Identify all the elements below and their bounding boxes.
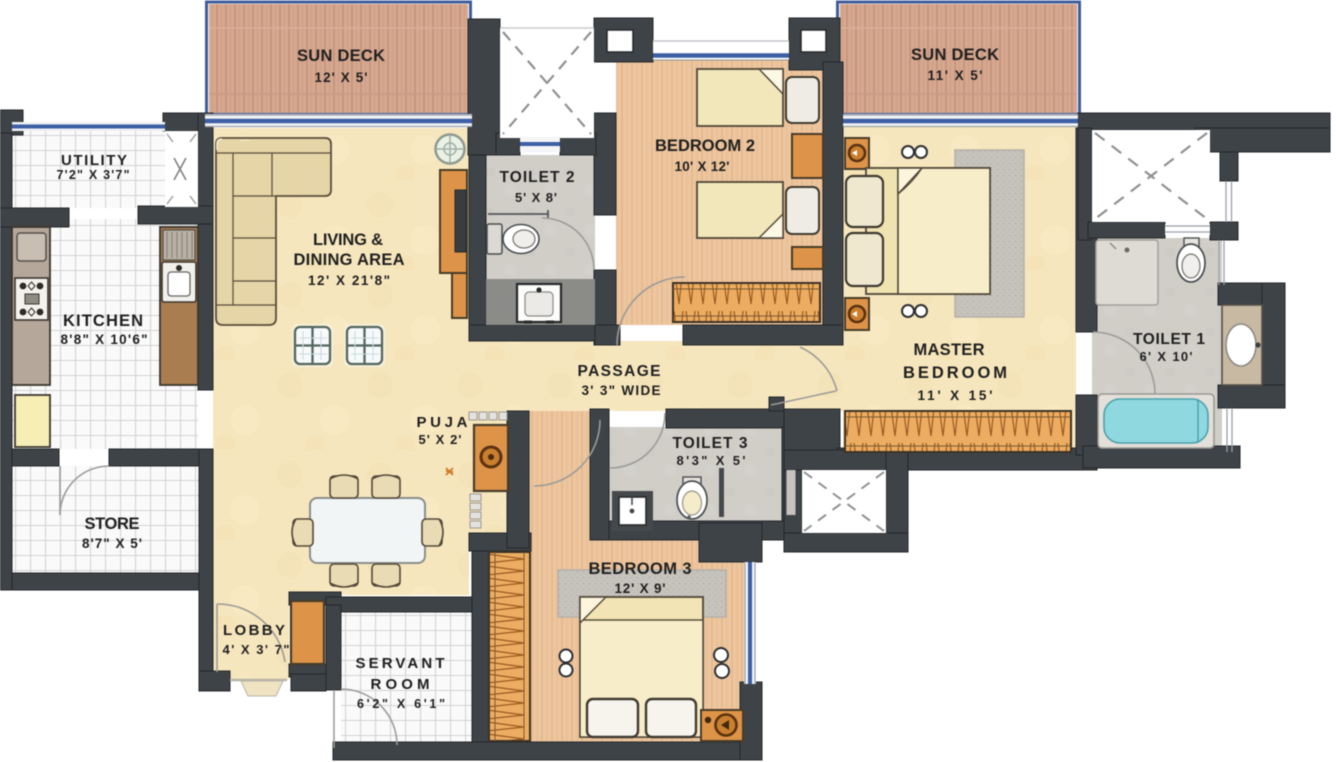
svg-text:8'7" X 5': 8'7" X 5' [82,536,142,551]
svg-text:11' X 5': 11' X 5' [928,68,983,83]
svg-text:PASSAGE: PASSAGE [578,363,661,380]
svg-text:8'8" X 10'6": 8'8" X 10'6" [61,332,148,347]
svg-text:12' X 21'8": 12' X 21'8" [308,273,390,288]
svg-text:STORE: STORE [85,515,140,533]
svg-text:5' X 2': 5' X 2' [419,432,462,447]
svg-text:UTILITY: UTILITY [61,152,127,169]
svg-text:3' 3" WIDE: 3' 3" WIDE [582,383,661,398]
svg-text:TOILET 2: TOILET 2 [500,169,575,186]
svg-text:8'3" X 5': 8'3" X 5' [677,453,746,468]
svg-text:BEDROOM 2: BEDROOM 2 [655,137,755,155]
svg-text:MASTER: MASTER [914,341,985,359]
svg-text:11' X 15': 11' X 15' [918,388,993,403]
svg-text:7'2" X 3'7": 7'2" X 3'7" [57,168,130,182]
svg-text:10' X 12': 10' X 12' [675,159,730,174]
svg-text:SUN DECK: SUN DECK [911,46,999,64]
svg-text:LIVING &: LIVING & [313,231,383,249]
svg-text:SUN DECK: SUN DECK [297,47,385,65]
svg-text:12' X 9': 12' X 9' [615,581,666,596]
svg-text:12' X 5': 12' X 5' [315,70,368,85]
svg-text:5' X 8': 5' X 8' [515,190,557,205]
svg-text:TOILET 3: TOILET 3 [673,435,748,452]
svg-text:DINING AREA: DINING AREA [294,251,405,269]
svg-text:TOILET 1: TOILET 1 [1133,331,1205,348]
svg-text:6' X 10': 6' X 10' [1140,349,1193,364]
svg-text:4' X 3' 7": 4' X 3' 7" [223,642,290,657]
svg-text:SERVANT: SERVANT [356,655,445,672]
svg-text:BEDROOM 3: BEDROOM 3 [589,560,692,578]
